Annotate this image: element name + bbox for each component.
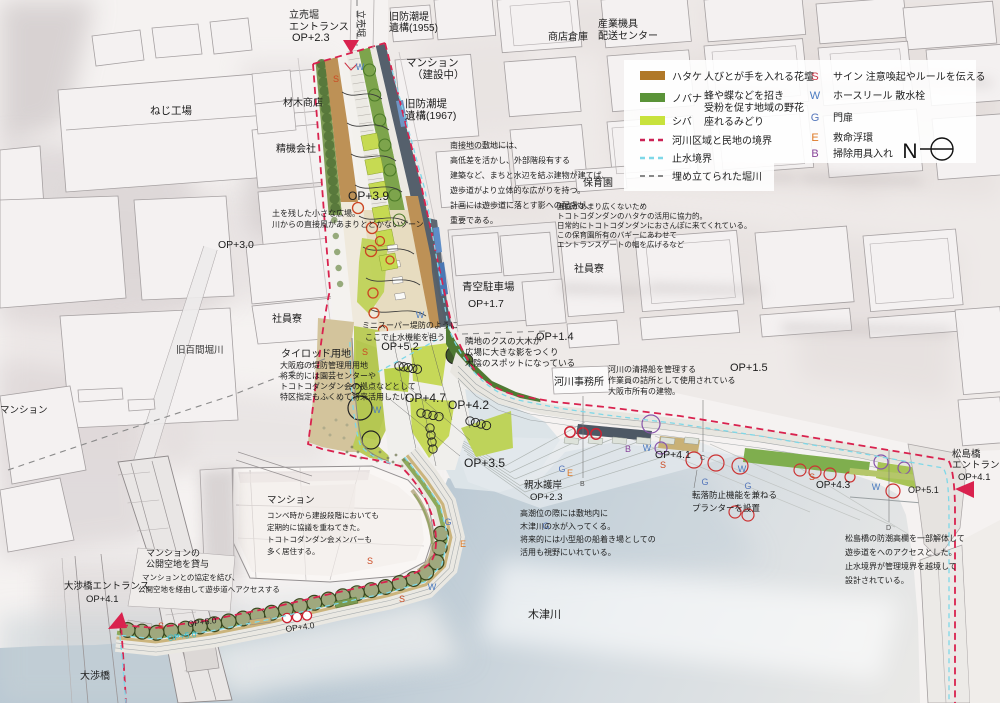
svg-text:S: S: [367, 556, 373, 566]
svg-text:OP+4.2: OP+4.2: [448, 398, 489, 412]
svg-text:埋め立てられた堀川: 埋め立てられた堀川: [672, 170, 762, 183]
svg-text:OP+3.5: OP+3.5: [464, 456, 505, 470]
svg-text:大渉橋エントランス: 大渉橋エントランス: [64, 580, 149, 592]
svg-text:N: N: [902, 140, 917, 163]
svg-text:建築など、まちと水辺を結ぶ建物が建てば、: 建築など、まちと水辺を結ぶ建物が建てば、: [450, 170, 609, 180]
svg-text:人びとが手を入れる花壇: 人びとが手を入れる花壇: [704, 70, 814, 83]
svg-text:G: G: [811, 112, 820, 124]
svg-text:D: D: [886, 525, 891, 532]
svg-text:OP+1.5: OP+1.5: [730, 362, 768, 374]
svg-text:社員寮: 社員寮: [272, 312, 302, 325]
svg-text:OP+4.1: OP+4.1: [86, 594, 118, 605]
svg-text:南接地の敷地には、: 南接地の敷地には、: [450, 140, 522, 150]
svg-text:B: B: [580, 481, 585, 488]
svg-text:OP+4.7: OP+4.7: [405, 391, 446, 405]
svg-text:OP+1.4: OP+1.4: [536, 331, 574, 343]
svg-text:将来的には園芸センターや: 将来的には園芸センターや: [280, 371, 376, 381]
svg-text:高低差を活かし、外部階段有する: 高低差を活かし、外部階段有する: [450, 155, 570, 165]
svg-text:E: E: [460, 539, 466, 549]
svg-text:親水護岸: 親水護岸: [524, 479, 563, 491]
svg-text:S: S: [399, 594, 405, 604]
svg-text:特区指定もふくめて将来活用したい: 特区指定もふくめて将来活用したい: [280, 392, 408, 402]
svg-text:土を残した小さな広場。: 土を残した小さな広場。: [272, 208, 360, 218]
svg-text:遺構(1967): 遺構(1967): [405, 109, 456, 122]
svg-text:サイン 注意喚起やルールを伝える: サイン 注意喚起やルールを伝える: [833, 70, 985, 83]
svg-text:E: E: [811, 132, 818, 144]
svg-text:立売堀: 立売堀: [289, 8, 319, 21]
svg-text:作業員の詰所として使用されている: 作業員の詰所として使用されている: [608, 375, 736, 385]
svg-text:OP+4.1: OP+4.1: [655, 449, 691, 461]
svg-text:OP+2.3: OP+2.3: [530, 492, 562, 503]
svg-text:産業機具: 産業機具: [598, 17, 638, 30]
svg-text:プランターを設置: プランターを設置: [692, 503, 761, 513]
svg-text:W: W: [810, 90, 821, 102]
svg-text:W: W: [373, 405, 382, 415]
svg-text:W: W: [356, 62, 365, 72]
svg-text:将来的には小型船の船着き場としての: 将来的には小型船の船着き場としての: [520, 534, 656, 544]
svg-text:旧百間堀川: 旧百間堀川: [176, 345, 224, 356]
svg-text:（建設中）: （建設中）: [412, 68, 465, 81]
svg-text:エントランスゲートの幅を広げるなど: エントランスゲートの幅を広げるなど: [557, 239, 685, 249]
svg-text:大阪府の堤防管理用用地: 大阪府の堤防管理用用地: [280, 360, 368, 370]
svg-text:エントランス: エントランス: [952, 460, 1000, 471]
svg-text:隣地のクスの大木が: 隣地のクスの大木が: [465, 336, 542, 346]
svg-text:S: S: [811, 71, 818, 83]
svg-text:公開空地を経由して遊歩道へアクセスする: 公開空地を経由して遊歩道へアクセスする: [138, 584, 280, 594]
svg-text:河川の清掃船を管理する: 河川の清掃船を管理する: [608, 364, 696, 374]
svg-text:トコトコダンダン会メンバーも: トコトコダンダン会メンバーも: [267, 534, 372, 544]
svg-text:止水境界: 止水境界: [672, 152, 712, 165]
svg-text:OP+3.9: OP+3.9: [348, 189, 389, 203]
svg-text:S: S: [158, 621, 164, 631]
svg-text:材木商店: 材木商店: [283, 96, 323, 109]
svg-text:ハタケ: ハタケ: [672, 71, 702, 83]
svg-text:この保育園所有のバギーにあわせて: この保育園所有のバギーにあわせて: [557, 230, 677, 240]
svg-text:旧防潮堤: 旧防潮堤: [389, 10, 429, 23]
svg-text:マンションの: マンションの: [146, 548, 200, 558]
svg-text:OP+3.0: OP+3.0: [218, 239, 254, 251]
svg-text:河川事務所: 河川事務所: [554, 375, 604, 388]
svg-text:立売堀: 立売堀: [356, 10, 367, 37]
svg-text:マンションとの協定を結び、: マンションとの協定を結び、: [142, 572, 239, 582]
svg-text:精機会社: 精機会社: [276, 142, 316, 155]
svg-text:タイロッド用地: タイロッド用地: [281, 347, 351, 360]
svg-text:シバ: シバ: [672, 116, 692, 128]
svg-text:OP+5.2: OP+5.2: [381, 341, 419, 353]
svg-text:OP+4.1: OP+4.1: [958, 472, 990, 483]
svg-text:蜂や蝶などを招き: 蜂や蝶などを招き: [704, 89, 784, 102]
svg-text:S: S: [333, 74, 339, 84]
svg-text:広場に大きな影をつくり: 広場に大きな影をつくり: [465, 347, 559, 357]
svg-text:青空駐車場: 青空駐車場: [462, 280, 515, 293]
svg-text:トコトコダンダン会の拠点などとして: トコトコダンダン会の拠点などとして: [280, 381, 416, 391]
svg-text:配送センター: 配送センター: [598, 29, 658, 42]
svg-text:G: G: [558, 464, 565, 474]
svg-text:松島橋: 松島橋: [952, 448, 981, 460]
svg-text:大阪市所有の建物。: 大阪市所有の建物。: [608, 386, 680, 396]
svg-text:E: E: [567, 468, 573, 478]
svg-text:救命浮環: 救命浮環: [833, 131, 873, 144]
svg-text:OP+2.3: OP+2.3: [292, 32, 330, 44]
svg-text:遊歩道がより立体的な広がりを持つ。: 遊歩道がより立体的な広がりを持つ。: [450, 185, 585, 195]
svg-text:W: W: [428, 582, 437, 592]
svg-text:転落防止機能を兼ねる: 転落防止機能を兼ねる: [692, 490, 777, 500]
svg-text:OP+4.3: OP+4.3: [816, 480, 851, 491]
svg-text:座れるみどり: 座れるみどり: [704, 115, 764, 128]
svg-text:S: S: [362, 347, 368, 357]
svg-text:掃除用具入れ: 掃除用具入れ: [833, 147, 893, 160]
svg-text:遺構(1955): 遺構(1955): [389, 21, 438, 34]
svg-text:W: W: [416, 310, 425, 320]
svg-text:重要である。: 重要である。: [450, 215, 498, 225]
svg-text:W: W: [643, 443, 652, 453]
svg-text:計画には遊歩道に落とす影への配慮が、: 計画には遊歩道に落とす影への配慮が、: [450, 200, 594, 210]
svg-text:定期的に協議を重ねてきた。: 定期的に協議を重ねてきた。: [267, 522, 364, 532]
svg-text:G: G: [701, 477, 708, 487]
svg-text:遊歩道をへのアクセスとした。: 遊歩道をへのアクセスとした。: [845, 547, 957, 557]
svg-text:設計されている。: 設計されている。: [845, 575, 909, 585]
svg-text:木津川: 木津川: [528, 608, 561, 621]
svg-text:受粉を促す地域の野花: 受粉を促す地域の野花: [704, 101, 804, 114]
svg-text:旧防潮堤: 旧防潮堤: [405, 97, 447, 110]
svg-text:G: G: [444, 517, 451, 527]
svg-text:止水境界が管理境界を越境して: 止水境界が管理境界を越境して: [845, 561, 957, 571]
svg-text:門扉: 門扉: [833, 111, 853, 124]
svg-text:OP+1.7: OP+1.7: [468, 298, 504, 310]
svg-text:公開空地を貸与: 公開空地を貸与: [146, 558, 209, 569]
svg-text:マンション: マンション: [0, 405, 48, 416]
svg-text:ホースリール 散水栓: ホースリール 散水栓: [833, 89, 925, 102]
svg-text:マンション: マンション: [406, 57, 459, 69]
svg-text:社員寮: 社員寮: [574, 262, 604, 275]
svg-text:S: S: [660, 460, 666, 470]
svg-text:川からの直接風があまりとどかないゾーン: 川からの直接風があまりとどかないゾーン: [272, 219, 424, 229]
svg-text:高潮位の際には敷地内に: 高潮位の際には敷地内に: [520, 508, 608, 518]
svg-text:ミニスーパー堤防のように: ミニスーパー堤防のように: [362, 320, 458, 330]
svg-text:コンベ時から建設段階においても: コンベ時から建設段階においても: [267, 510, 379, 520]
svg-text:木津川の水が入ってくる。: 木津川の水が入ってくる。: [520, 521, 615, 531]
svg-text:マンション: マンション: [267, 495, 315, 506]
svg-text:活用も視野にいれている。: 活用も視野にいれている。: [520, 547, 616, 557]
svg-text:B: B: [625, 444, 631, 454]
svg-text:OP+5.1: OP+5.1: [908, 485, 939, 495]
svg-text:W: W: [738, 464, 747, 474]
svg-text:大渉橋: 大渉橋: [80, 669, 110, 682]
svg-text:河川区域と民地の境界: 河川区域と民地の境界: [672, 134, 772, 147]
svg-text:木陰のスポットになっている: 木陰のスポットになっている: [465, 358, 575, 368]
svg-text:日常的にトコトコダンダンにおさんぽに来てくれている。: 日常的にトコトコダンダンにおさんぽに来てくれている。: [557, 220, 752, 230]
svg-text:S: S: [809, 472, 815, 482]
svg-text:ねじ工場: ねじ工場: [150, 104, 192, 117]
svg-text:ノバナ: ノバナ: [672, 93, 702, 105]
svg-text:C: C: [700, 455, 705, 462]
svg-text:トコトコダンダンのハタケの活用に協力的。: トコトコダンダンのハタケの活用に協力的。: [557, 211, 707, 221]
svg-text:松島橋の防潮高欄を一部解体して: 松島橋の防潮高欄を一部解体して: [845, 533, 965, 543]
svg-text:B: B: [811, 148, 818, 160]
svg-text:商店倉庫: 商店倉庫: [548, 30, 588, 43]
svg-text:多く居住する。: 多く居住する。: [267, 546, 320, 556]
svg-text:W: W: [872, 482, 881, 492]
